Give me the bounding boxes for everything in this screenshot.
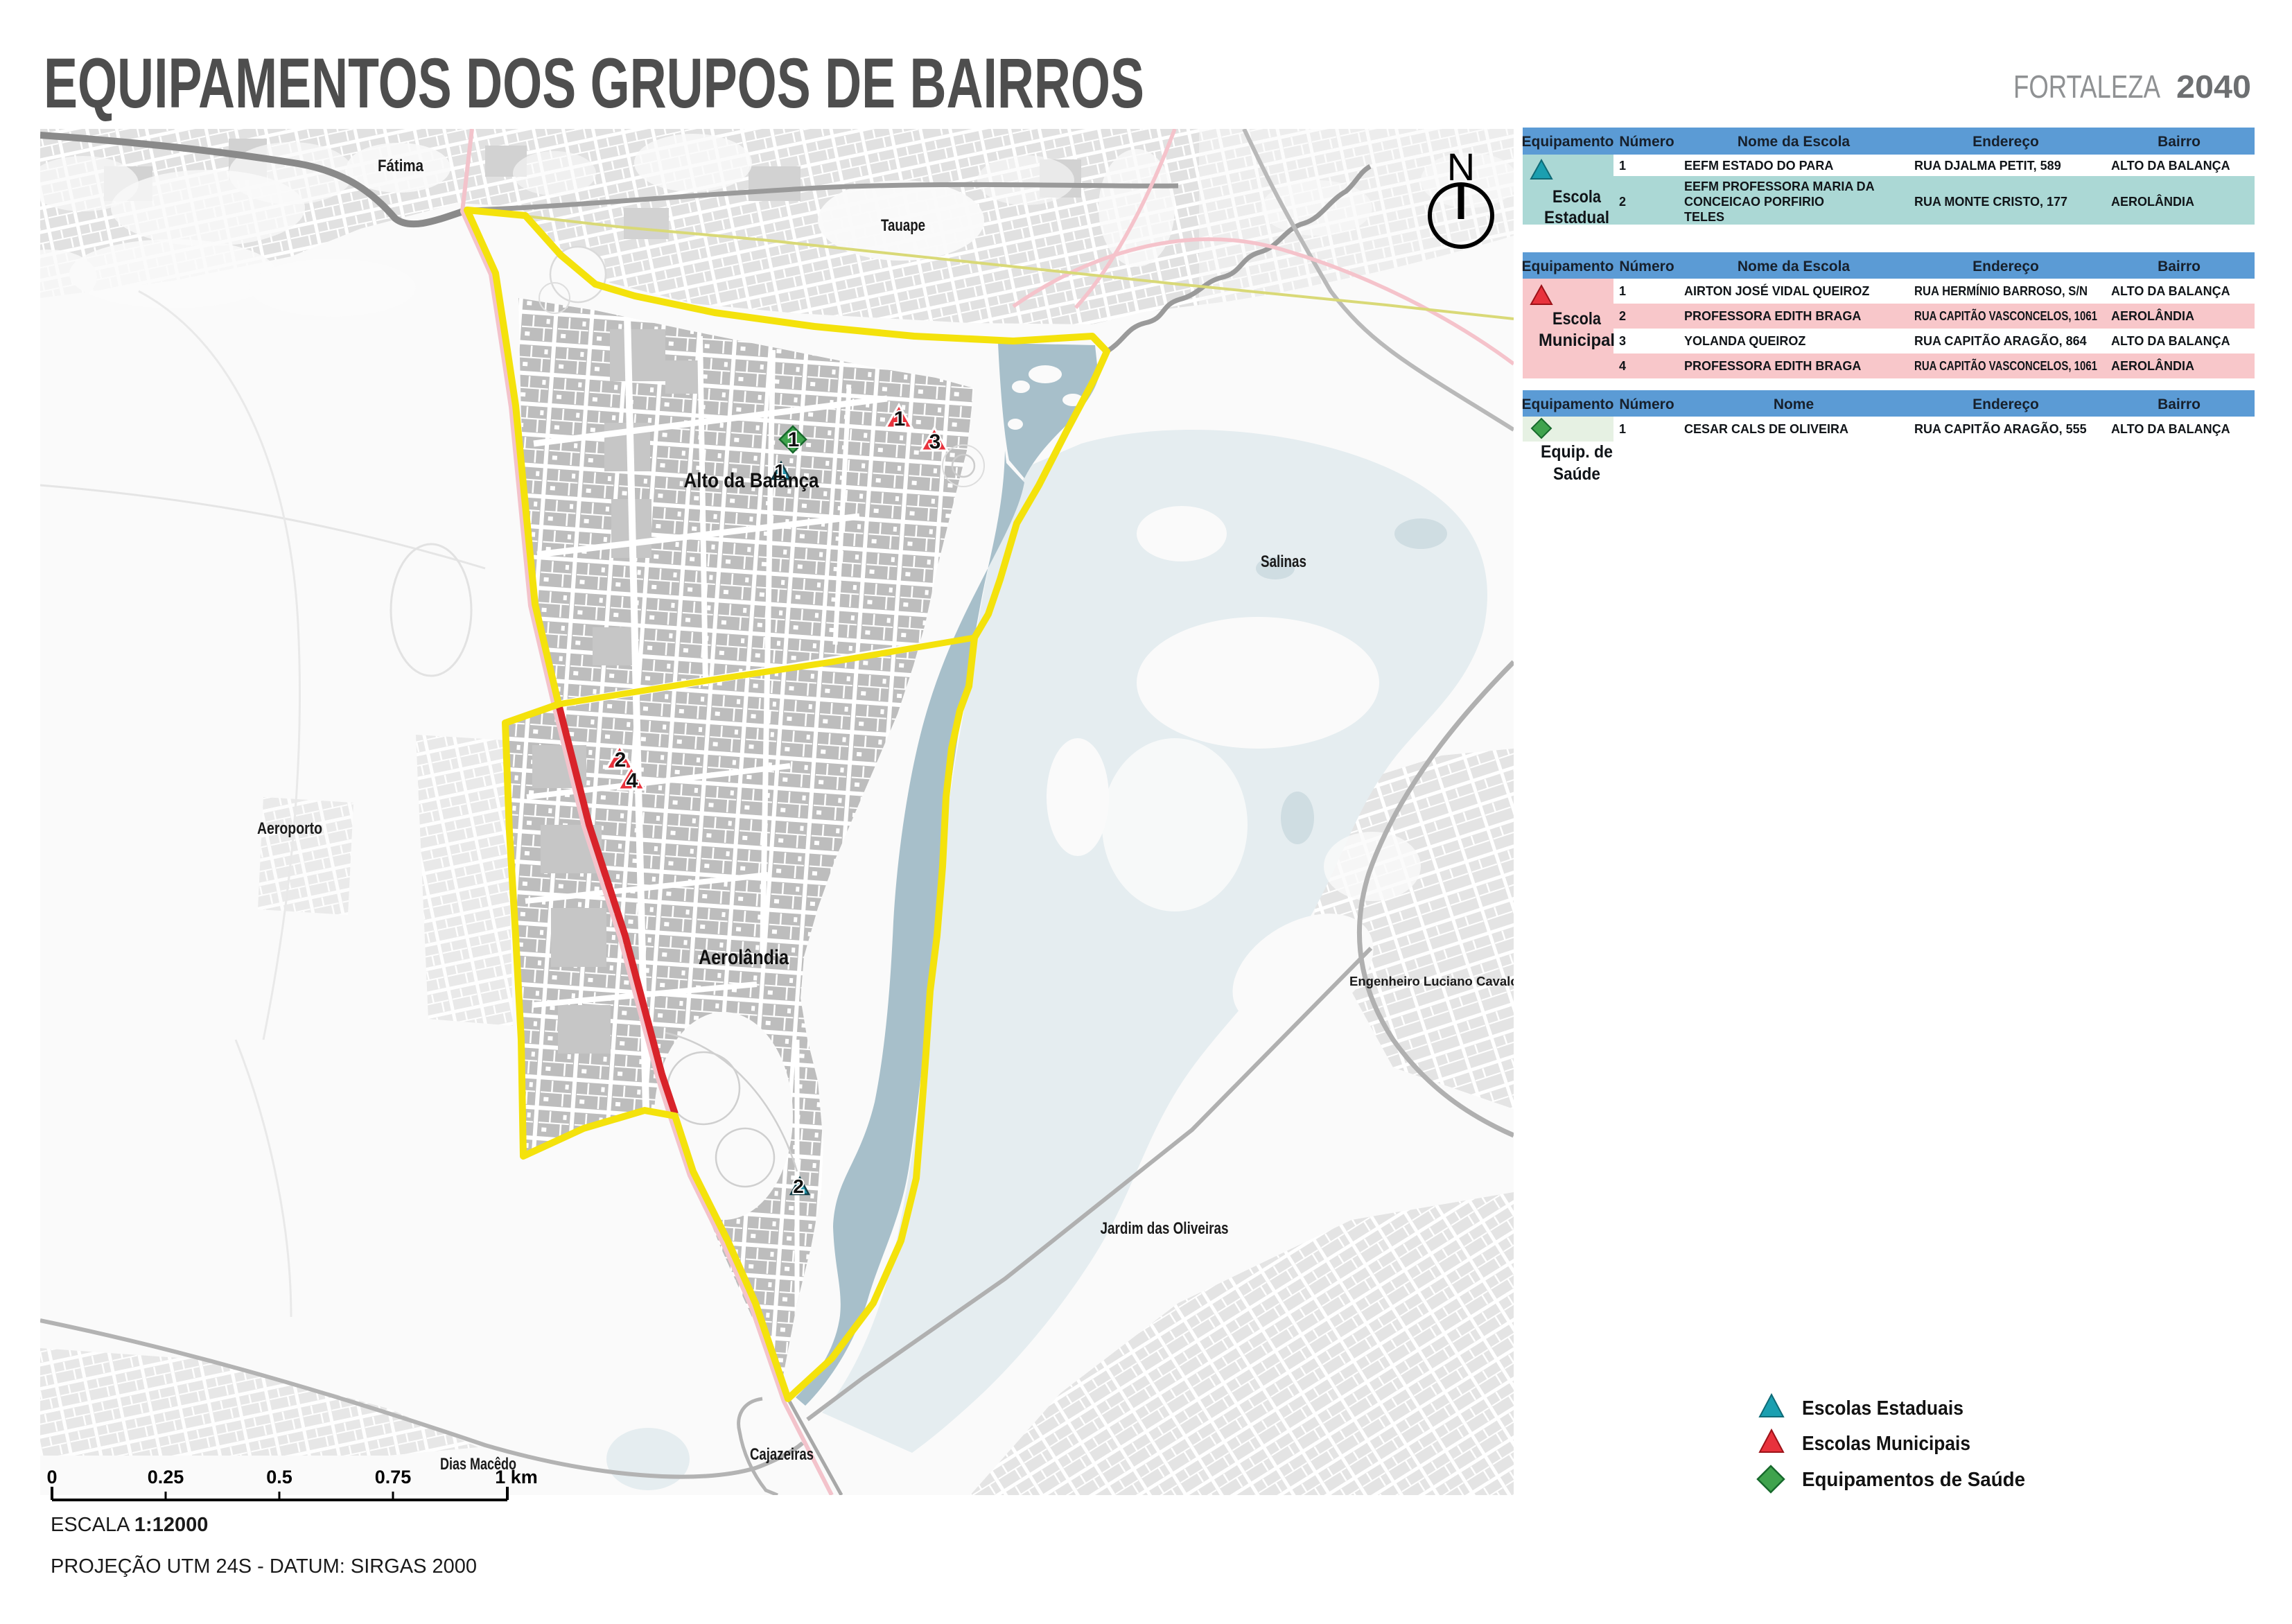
svg-text:Número: Número bbox=[1619, 396, 1674, 412]
svg-text:Aerolândia: Aerolândia bbox=[699, 946, 789, 969]
svg-text:Alto da Balança: Alto da Balança bbox=[684, 469, 819, 492]
svg-text:Equip. de: Equip. de bbox=[1541, 442, 1613, 462]
svg-text:FORTALEZA: FORTALEZA bbox=[2013, 69, 2160, 105]
svg-text:ESCALA 1:12000: ESCALA 1:12000 bbox=[51, 1514, 208, 1536]
svg-text:4: 4 bbox=[627, 769, 638, 792]
svg-text:2: 2 bbox=[1619, 309, 1626, 323]
svg-text:Nome da Escola: Nome da Escola bbox=[1738, 259, 1851, 274]
svg-text:1: 1 bbox=[788, 428, 800, 451]
svg-text:CONCEICAO PORFIRIO: CONCEICAO PORFIRIO bbox=[1684, 195, 1824, 209]
svg-text:Escola: Escola bbox=[1552, 309, 1602, 329]
svg-text:N: N bbox=[1447, 145, 1475, 189]
svg-text:Equipamento: Equipamento bbox=[1521, 259, 1613, 274]
svg-text:2040: 2040 bbox=[2176, 69, 2251, 105]
svg-text:1: 1 bbox=[1619, 159, 1626, 173]
svg-text:2: 2 bbox=[793, 1176, 804, 1197]
svg-text:RUA CAPITÃO ARAGÃO, 555: RUA CAPITÃO ARAGÃO, 555 bbox=[1914, 421, 2087, 436]
svg-text:RUA CAPITÃO ARAGÃO, 864: RUA CAPITÃO ARAGÃO, 864 bbox=[1914, 333, 2087, 348]
svg-text:PROFESSORA EDITH BRAGA: PROFESSORA EDITH BRAGA bbox=[1684, 309, 1861, 323]
svg-text:ALTO DA BALANÇA: ALTO DA BALANÇA bbox=[2111, 159, 2230, 173]
svg-text:4: 4 bbox=[1619, 359, 1626, 373]
svg-text:RUA CAPITÃO VASCONCELOS, 1061: RUA CAPITÃO VASCONCELOS, 1061 bbox=[1914, 358, 2097, 373]
svg-text:1: 1 bbox=[1619, 422, 1626, 436]
svg-text:3: 3 bbox=[1619, 334, 1626, 348]
svg-text:Escola: Escola bbox=[1552, 187, 1602, 207]
svg-text:1 km: 1 km bbox=[495, 1467, 538, 1487]
svg-text:TELES: TELES bbox=[1684, 210, 1724, 224]
svg-text:EEFM PROFESSORA MARIA DA: EEFM PROFESSORA MARIA DA bbox=[1684, 180, 1875, 193]
svg-text:RUA HERMÍNIO BARROSO, S/N: RUA HERMÍNIO BARROSO, S/N bbox=[1914, 283, 2088, 298]
svg-text:Bairro: Bairro bbox=[2158, 259, 2201, 274]
svg-text:Tauape: Tauape bbox=[881, 216, 925, 235]
svg-text:2: 2 bbox=[1619, 195, 1626, 209]
svg-text:ALTO DA BALANÇA: ALTO DA BALANÇA bbox=[2111, 422, 2230, 436]
svg-text:Número: Número bbox=[1619, 259, 1674, 274]
svg-text:AIRTON JOSÉ VIDAL QUEIROZ: AIRTON JOSÉ VIDAL QUEIROZ bbox=[1684, 283, 1869, 298]
svg-text:Endereço: Endereço bbox=[1972, 259, 2039, 274]
svg-text:Saúde: Saúde bbox=[1553, 464, 1600, 484]
svg-text:ALTO DA BALANÇA: ALTO DA BALANÇA bbox=[2111, 284, 2230, 298]
svg-text:Fátima: Fátima bbox=[378, 157, 424, 175]
svg-text:RUA DJALMA PETIT, 589: RUA DJALMA PETIT, 589 bbox=[1914, 159, 2061, 173]
svg-text:YOLANDA QUEIROZ: YOLANDA QUEIROZ bbox=[1684, 334, 1805, 348]
svg-text:PROJEÇÃO UTM 24S - DATUM: SIRG: PROJEÇÃO UTM 24S - DATUM: SIRGAS 2000 bbox=[51, 1554, 477, 1578]
svg-text:ALTO DA BALANÇA: ALTO DA BALANÇA bbox=[2111, 334, 2230, 348]
svg-text:Equipamento: Equipamento bbox=[1521, 396, 1613, 412]
svg-text:Aeroporto: Aeroporto bbox=[257, 819, 322, 838]
svg-text:AEROLÂNDIA: AEROLÂNDIA bbox=[2111, 358, 2194, 373]
svg-text:Número: Número bbox=[1619, 134, 1674, 150]
svg-text:Jardim das Oliveiras: Jardim das Oliveiras bbox=[1101, 1219, 1229, 1238]
svg-text:Bairro: Bairro bbox=[2158, 134, 2201, 150]
svg-text:0.25: 0.25 bbox=[148, 1467, 184, 1487]
svg-text:0.5: 0.5 bbox=[266, 1467, 292, 1487]
svg-text:Equipamento: Equipamento bbox=[1521, 134, 1613, 150]
svg-text:Nome: Nome bbox=[1774, 396, 1814, 412]
svg-text:1: 1 bbox=[1619, 284, 1626, 298]
svg-text:EQUIPAMENTOS DOS GRUPOS DE BAI: EQUIPAMENTOS DOS GRUPOS DE BAIRROS bbox=[44, 44, 1144, 123]
svg-text:RUA MONTE CRISTO, 177: RUA MONTE CRISTO, 177 bbox=[1914, 195, 2067, 209]
svg-text:CESAR CALS DE OLIVEIRA: CESAR CALS DE OLIVEIRA bbox=[1684, 422, 1848, 436]
svg-text:2: 2 bbox=[615, 749, 627, 771]
svg-text:Escolas Municipais: Escolas Municipais bbox=[1802, 1433, 1970, 1455]
svg-text:AEROLÂNDIA: AEROLÂNDIA bbox=[2111, 308, 2194, 323]
svg-text:Bairro: Bairro bbox=[2158, 396, 2201, 412]
svg-text:Estadual: Estadual bbox=[1544, 208, 1609, 227]
svg-text:0: 0 bbox=[46, 1467, 57, 1487]
svg-text:3: 3 bbox=[929, 430, 941, 453]
svg-text:1: 1 bbox=[894, 408, 906, 430]
svg-text:Equipamentos de Saúde: Equipamentos de Saúde bbox=[1802, 1469, 2025, 1491]
svg-text:Escolas Estaduais: Escolas Estaduais bbox=[1802, 1397, 1963, 1420]
svg-text:RUA CAPITÃO VASCONCELOS, 1061: RUA CAPITÃO VASCONCELOS, 1061 bbox=[1914, 308, 2097, 323]
svg-text:AEROLÂNDIA: AEROLÂNDIA bbox=[2111, 194, 2194, 209]
svg-text:PROFESSORA EDITH BRAGA: PROFESSORA EDITH BRAGA bbox=[1684, 359, 1861, 373]
svg-text:Cajazeiras: Cajazeiras bbox=[750, 1445, 814, 1464]
svg-text:Nome da Escola: Nome da Escola bbox=[1738, 134, 1851, 150]
svg-text:Endereço: Endereço bbox=[1972, 134, 2039, 150]
svg-text:0.75: 0.75 bbox=[375, 1467, 412, 1487]
svg-text:Salinas: Salinas bbox=[1261, 552, 1306, 571]
svg-text:Municipal: Municipal bbox=[1539, 331, 1615, 350]
svg-text:EEFM ESTADO DO PARA: EEFM ESTADO DO PARA bbox=[1684, 159, 1833, 173]
svg-text:Endereço: Endereço bbox=[1972, 396, 2039, 412]
